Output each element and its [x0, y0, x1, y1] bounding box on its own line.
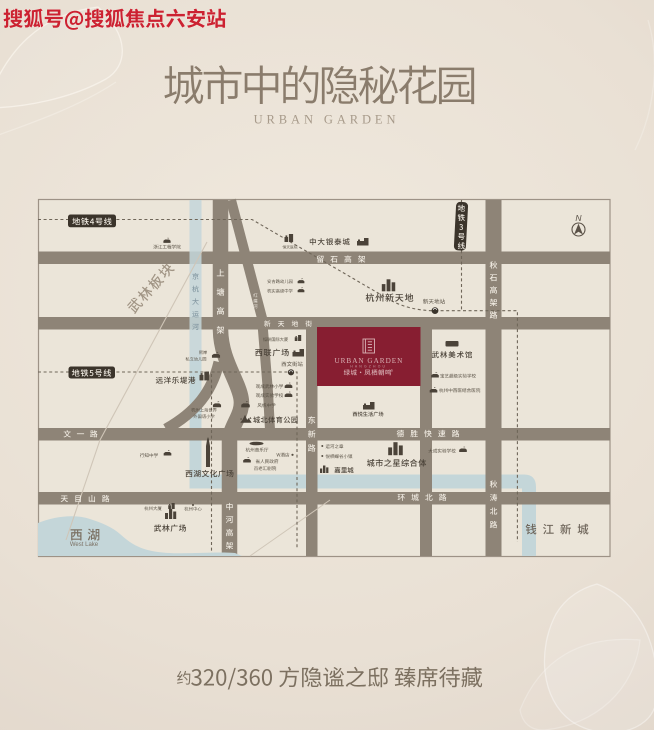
svg-text:N: N [575, 213, 582, 223]
svg-text:URBAN GARDEN: URBAN GARDEN [254, 113, 400, 127]
svg-text:®: ® [391, 369, 394, 373]
svg-text:West Lake: West Lake [70, 542, 99, 548]
svg-text:HANGZHOU: HANGZHOU [350, 364, 387, 368]
